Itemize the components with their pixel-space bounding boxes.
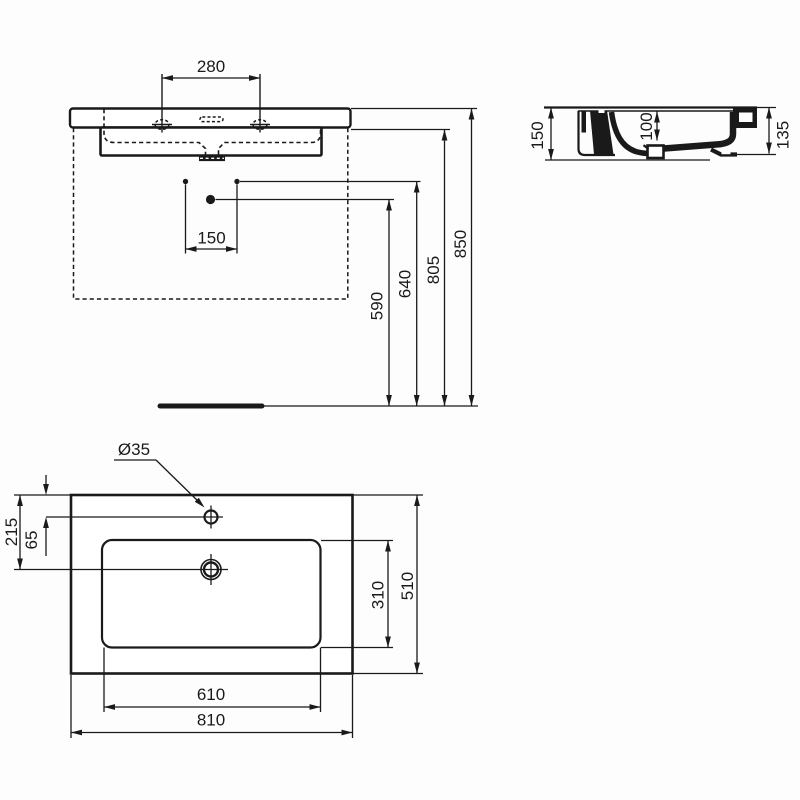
svg-text:810: 810 — [197, 711, 225, 730]
svg-text:310: 310 — [369, 581, 388, 609]
svg-text:215: 215 — [2, 518, 21, 546]
svg-text:Ø35: Ø35 — [118, 440, 150, 459]
svg-text:640: 640 — [396, 270, 415, 298]
svg-text:590: 590 — [368, 292, 387, 320]
svg-text:65: 65 — [22, 531, 41, 550]
svg-text:805: 805 — [424, 256, 443, 284]
svg-text:510: 510 — [398, 572, 417, 600]
svg-text:280: 280 — [197, 57, 225, 76]
svg-text:150: 150 — [528, 121, 547, 149]
svg-text:850: 850 — [451, 230, 470, 258]
svg-text:100: 100 — [637, 112, 656, 140]
svg-text:135: 135 — [774, 121, 793, 149]
svg-text:610: 610 — [197, 685, 225, 704]
svg-text:150: 150 — [197, 229, 225, 248]
